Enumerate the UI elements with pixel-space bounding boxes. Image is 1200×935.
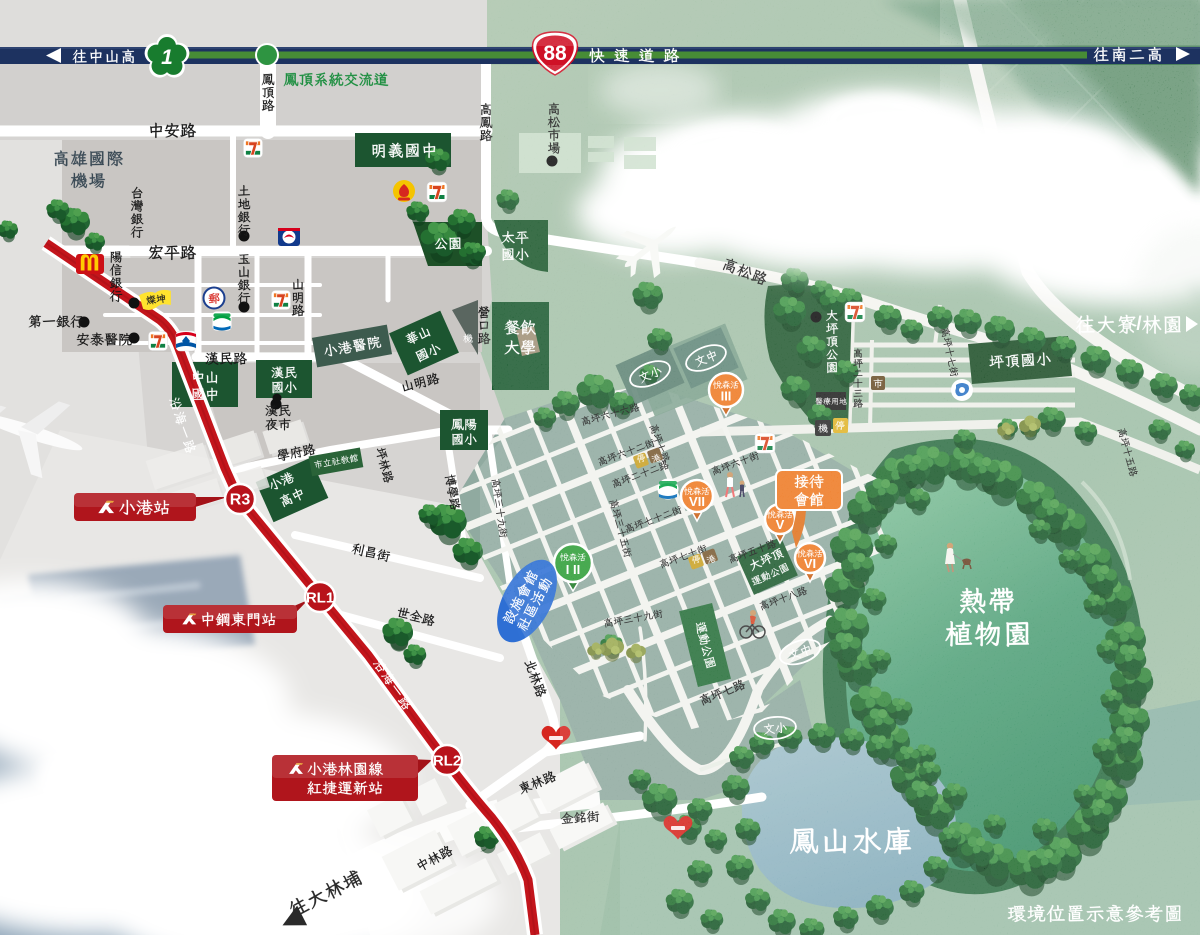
svg-text:1: 1 <box>161 46 173 69</box>
svg-text:RL1: RL1 <box>306 589 334 606</box>
svg-text:RL2: RL2 <box>433 752 461 769</box>
svg-text:R3: R3 <box>230 492 251 509</box>
